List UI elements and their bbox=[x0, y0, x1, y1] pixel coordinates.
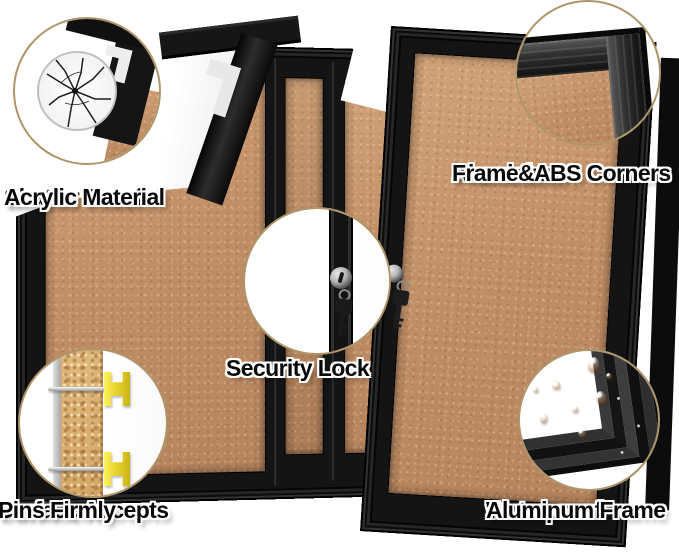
pushpin-icon bbox=[48, 452, 130, 486]
label-line: Security Lock bbox=[226, 354, 369, 382]
water-drop-icon bbox=[572, 406, 578, 412]
pin-needle bbox=[48, 467, 106, 471]
frame-corner-icon bbox=[515, 0, 661, 146]
water-drop-icon bbox=[606, 373, 612, 379]
shattered-glass-icon bbox=[37, 51, 117, 131]
pin-head bbox=[104, 372, 130, 406]
label-line: Acrylic Material bbox=[4, 183, 164, 211]
callout-waterproof bbox=[518, 349, 660, 491]
label-line: Pins Firmly bbox=[0, 496, 115, 524]
product-feature-image: Shatter Proof Acrylic Material Aluminium… bbox=[0, 0, 679, 556]
callout-shatter-proof bbox=[13, 17, 161, 165]
callout-pin-surface bbox=[18, 348, 168, 498]
water-drop-icon bbox=[552, 381, 560, 389]
label-line: Aluminum Frame bbox=[486, 496, 665, 524]
open-gap-detail bbox=[353, 209, 391, 355]
water-drop-icon bbox=[540, 413, 547, 423]
callout-security-lock bbox=[243, 207, 391, 355]
label-line: Frame&ABS Corners bbox=[452, 159, 671, 187]
water-drop-icon bbox=[578, 429, 586, 437]
pushpin-icon bbox=[48, 372, 130, 406]
pin-needle bbox=[48, 387, 106, 391]
water-drop-icon bbox=[533, 387, 538, 392]
callout-frame-corner bbox=[515, 0, 661, 146]
pin-head bbox=[104, 452, 130, 486]
